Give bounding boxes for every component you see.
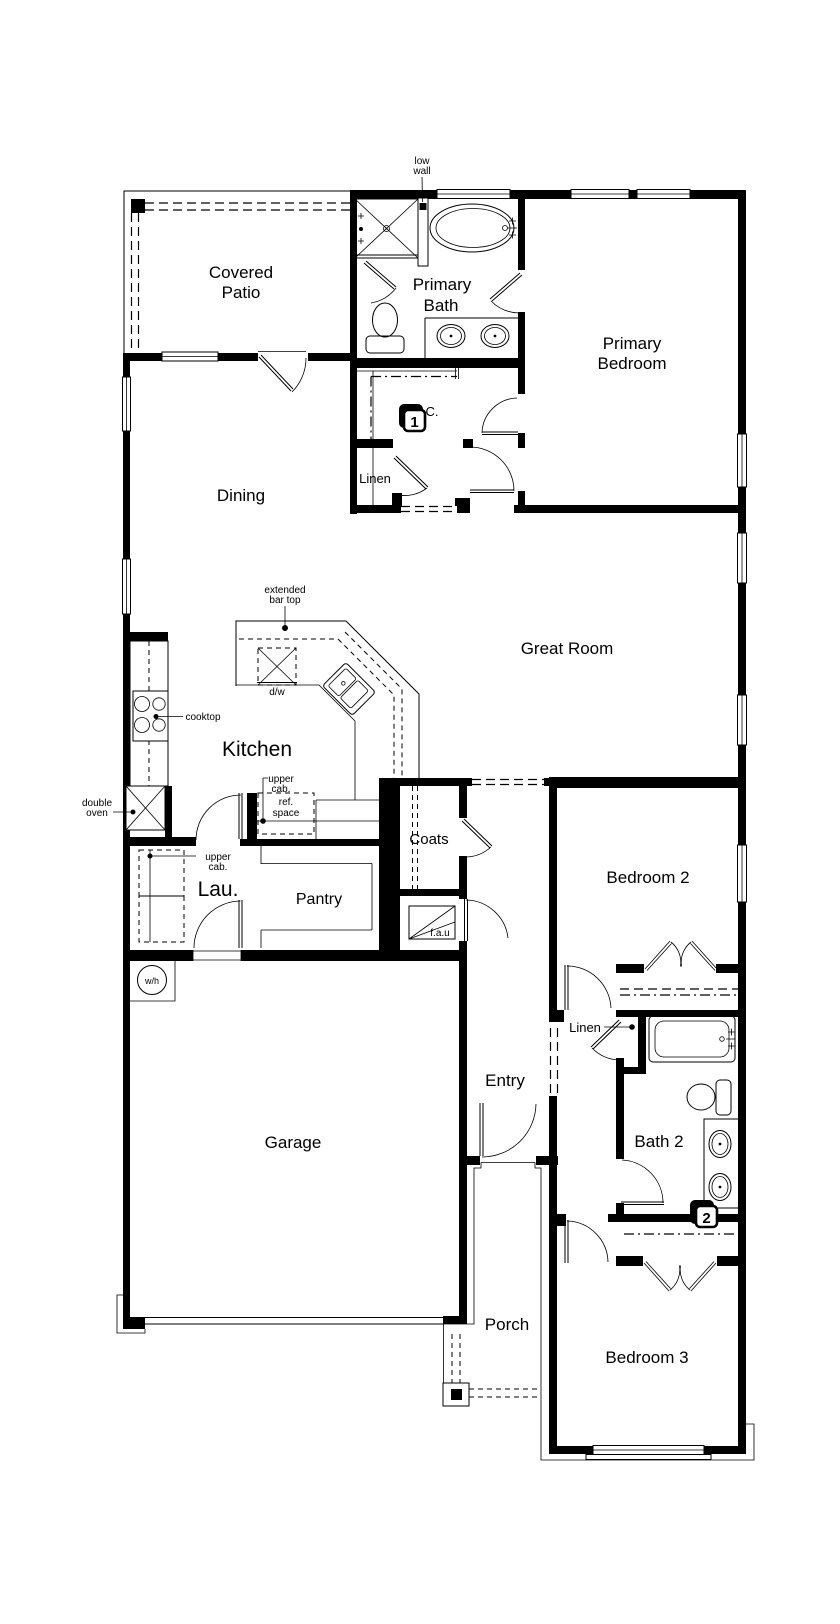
svg-text:d/w: d/w [269,687,285,698]
svg-text:f.a.u: f.a.u [430,928,449,939]
svg-text:bar top: bar top [269,595,301,606]
svg-text:Porch: Porch [485,1315,529,1334]
svg-text:wall: wall [412,166,430,177]
svg-text:Bath: Bath [424,296,459,315]
svg-text:Linen: Linen [359,471,391,486]
svg-text:cab.: cab. [209,862,228,873]
svg-text:w/h: w/h [144,976,159,986]
svg-text:Bedroom: Bedroom [598,354,667,373]
svg-text:oven: oven [86,808,108,819]
svg-text:Covered: Covered [209,263,273,282]
svg-text:Garage: Garage [265,1133,322,1152]
svg-text:Coats: Coats [409,831,448,848]
svg-text:Bedroom 2: Bedroom 2 [606,868,689,887]
svg-text:1: 1 [410,414,418,431]
svg-text:cab.: cab. [272,784,291,795]
svg-text:cooktop: cooktop [185,712,220,723]
svg-text:Dining: Dining [217,486,265,505]
svg-text:Kitchen: Kitchen [222,738,292,761]
svg-text:Pantry: Pantry [296,891,342,908]
svg-text:space: space [273,808,300,819]
svg-text:Great Room: Great Room [521,639,614,658]
svg-text:2: 2 [702,1210,710,1227]
svg-text:C.: C. [426,404,439,419]
svg-text:Entry: Entry [485,1071,525,1090]
svg-text:ref.: ref. [279,797,293,808]
svg-text:Linen: Linen [569,1020,601,1035]
svg-text:Bedroom 3: Bedroom 3 [605,1348,688,1367]
svg-text:Lau.: Lau. [198,878,239,901]
svg-text:Primary: Primary [603,334,662,353]
svg-text:Primary: Primary [413,275,472,294]
svg-text:Patio: Patio [222,283,261,302]
svg-text:Bath 2: Bath 2 [634,1132,683,1151]
